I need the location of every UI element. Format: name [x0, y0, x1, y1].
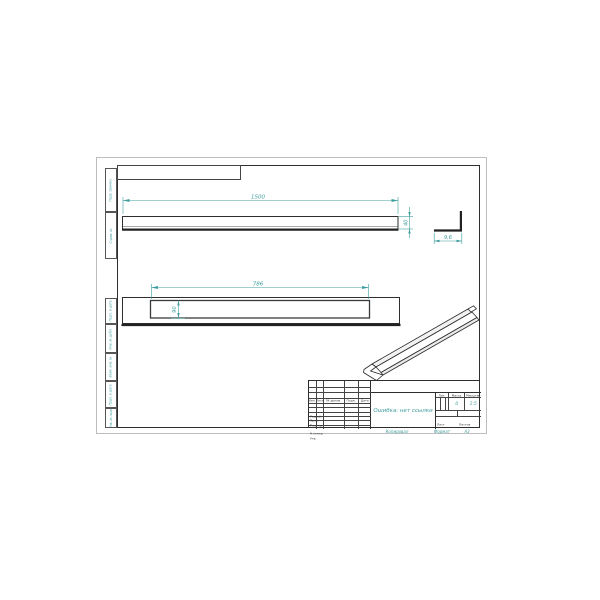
- grid-line: [358, 381, 359, 429]
- doc-name-cell: Ошибка: нет ссылки: [371, 393, 436, 429]
- grid-line: [445, 398, 446, 411]
- stamp-label: Подп. и дата: [109, 384, 113, 405]
- col-data: Дата: [358, 398, 371, 403]
- mass-cell: 0: [449, 398, 465, 411]
- stamp-label: Инв. № дубл.: [109, 328, 113, 349]
- row-nkontr: Н.контр.: [310, 420, 334, 424]
- grid-line: [344, 381, 345, 429]
- stamp-vzam-inv: Взам. инв. №: [105, 353, 117, 381]
- drawing-viewport: Перв. примен. Справ. № Подп. и дата Инв.…: [0, 0, 600, 600]
- stamp-inv-podl: Инв. № подл.: [105, 408, 117, 428]
- designation-repeat-box: [117, 165, 241, 180]
- stamp-label: Подп. и дата: [109, 300, 113, 321]
- row-prov: Пров.: [310, 407, 334, 411]
- title-block-left-section: Изм. Лист № докум. Подп. Дата Разраб. Пр…: [309, 381, 371, 429]
- grid-line: [309, 387, 371, 388]
- designation-cell: [371, 381, 481, 393]
- stamp-label: Перв. примен.: [109, 178, 113, 201]
- stamp-perv-primen: Перв. примен.: [105, 168, 117, 212]
- scale-cell: 1:5: [465, 398, 481, 411]
- org-cell: [436, 417, 481, 429]
- footer-format-value: А3: [461, 430, 474, 435]
- stamp-label: Инв. № подл.: [109, 408, 113, 428]
- lit-cell: [436, 398, 449, 411]
- stamp-label: Взам. инв. №: [109, 356, 113, 377]
- col-podp: Подп.: [344, 398, 358, 403]
- footer-format-label: Формат: [430, 430, 454, 435]
- stamp-podp-data-2: Подп. и дата: [105, 381, 117, 408]
- doc-name: Ошибка: нет ссылки: [373, 408, 432, 414]
- stamp-label: Справ. №: [109, 228, 113, 243]
- row-utv: Утв.: [310, 425, 334, 429]
- stamp-inv-dubl: Инв. № дубл.: [105, 324, 117, 353]
- drawing-sheet: Перв. примен. Справ. № Подп. и дата Инв.…: [96, 157, 487, 434]
- title-block-right-section: Лит. Масса Масштаб 0 1:5 Лист Листов: [436, 393, 481, 429]
- stamp-sprav-no: Справ. №: [105, 212, 117, 259]
- grid-line: [440, 398, 441, 411]
- stamp-podp-data-1: Подп. и дата: [105, 298, 117, 324]
- title-block: Изм. Лист № докум. Подп. Дата Разраб. Пр…: [308, 380, 480, 428]
- footer-copy: Копировал: [357, 430, 437, 435]
- grid-line: [309, 392, 371, 393]
